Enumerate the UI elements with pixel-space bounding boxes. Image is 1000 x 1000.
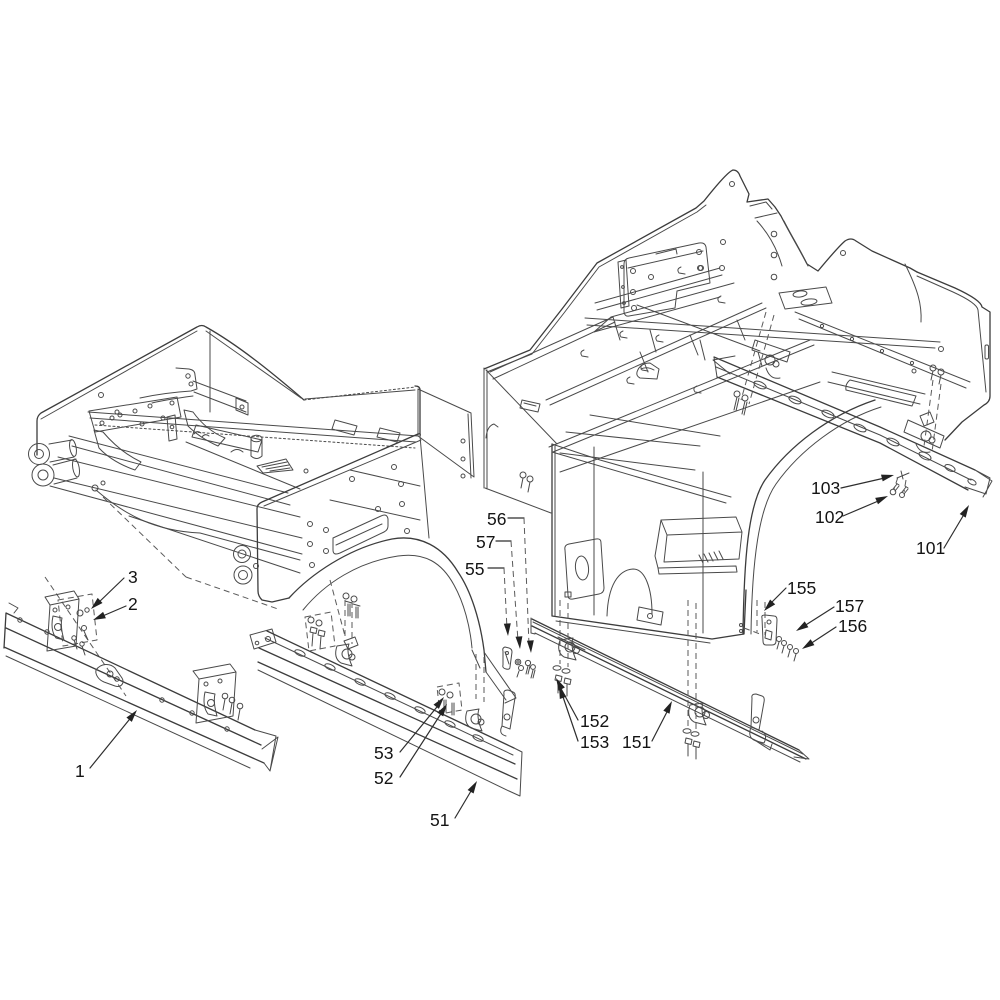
svg-text:156: 156 [838, 616, 867, 636]
svg-text:102: 102 [815, 507, 844, 527]
svg-text:103: 103 [811, 478, 840, 498]
svg-text:56: 56 [487, 509, 506, 529]
svg-text:1: 1 [75, 761, 85, 781]
svg-text:157: 157 [835, 596, 864, 616]
svg-text:53: 53 [374, 743, 393, 763]
svg-text:153: 153 [580, 732, 609, 752]
svg-text:3: 3 [128, 567, 138, 587]
svg-text:55: 55 [465, 559, 484, 579]
svg-text:52: 52 [374, 768, 393, 788]
svg-text:151: 151 [622, 732, 651, 752]
svg-text:101: 101 [916, 538, 945, 558]
svg-text:2: 2 [128, 594, 138, 614]
svg-text:57: 57 [476, 532, 495, 552]
svg-text:152: 152 [580, 711, 609, 731]
svg-text:51: 51 [430, 810, 449, 830]
svg-text:155: 155 [787, 578, 816, 598]
